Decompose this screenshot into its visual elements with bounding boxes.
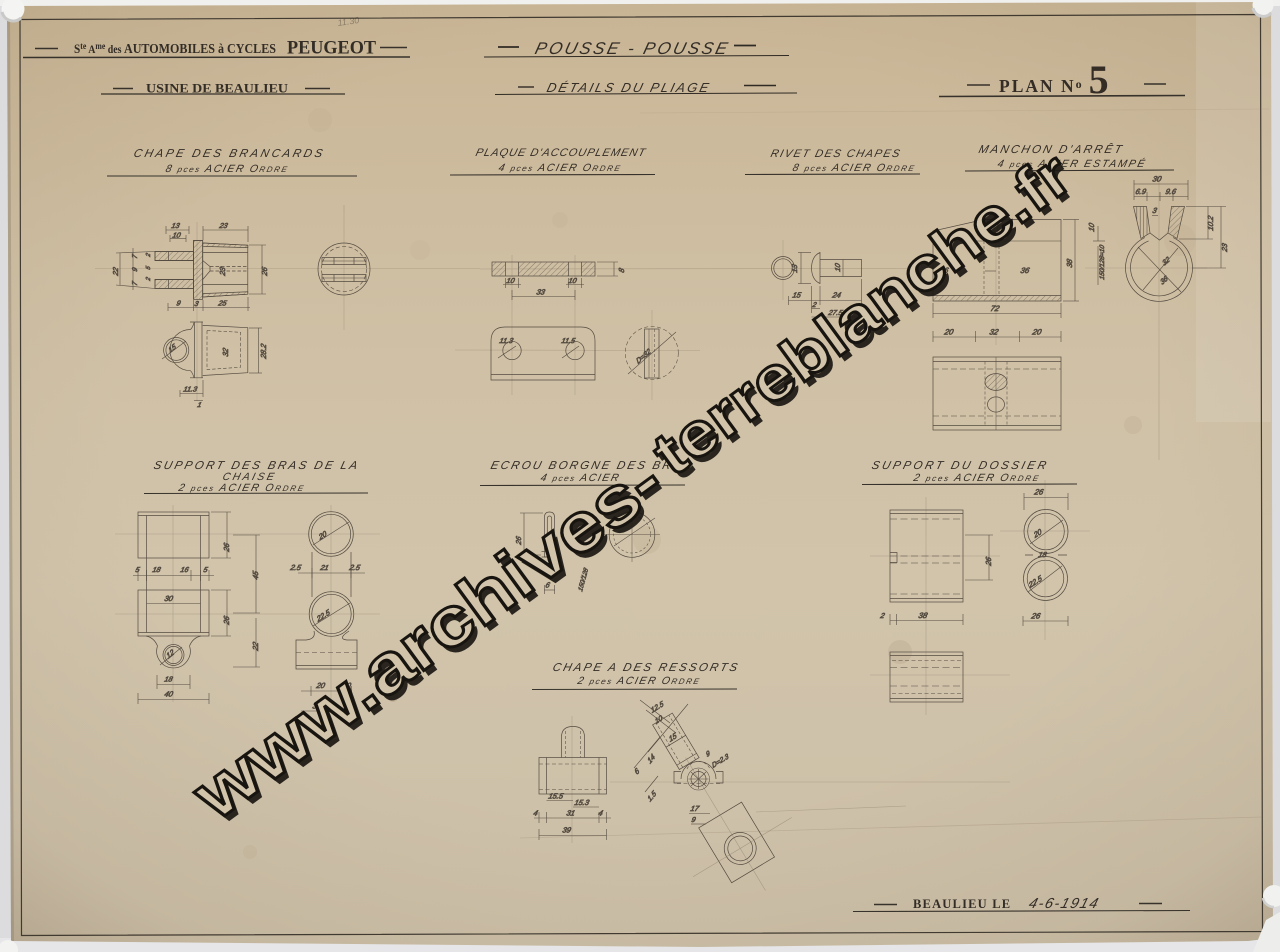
svg-text:2 pces ACIER ORDRE: 2 pces ACIER ORDRE [575,675,702,687]
svg-text:CHAPE DES BRANCARDS: CHAPE DES BRANCARDS [132,147,326,160]
svg-text:15.5: 15.5 [548,792,566,801]
svg-text:15.3: 15.3 [574,798,592,807]
svg-text:10.2: 10.2 [1206,214,1215,232]
svg-text:SUPPORT DES BRAS DE LA: SUPPORT DES BRAS DE LA [152,459,361,472]
svg-text:8 pces ACIER ORDRE: 8 pces ACIER ORDRE [791,162,917,174]
svg-text:28.2: 28.2 [259,342,268,361]
svg-text:150/128=10: 150/128=10 [1099,244,1106,281]
svg-text:PEUGEOT: PEUGEOT [287,38,376,59]
svg-text:CHAPE A DES RESSORTS: CHAPE A DES RESSORTS [551,661,741,674]
svg-text:USINE DE BEAULIEU: USINE DE BEAULIEU [146,81,289,96]
svg-text:DÉTAILS DU PLIAGE: DÉTAILS DU PLIAGE [545,80,712,95]
svg-text:4 pces ACIER ORDRE: 4 pces ACIER ORDRE [497,162,623,174]
svg-text:POUSSE - POUSSE: POUSSE - POUSSE [533,38,732,58]
svg-text:PLAQUE D'ACCOUPLEMENT: PLAQUE D'ACCOUPLEMENT [474,147,647,159]
svg-text:BEAULIEU LE: BEAULIEU LE [913,897,1011,911]
svg-text:Ste Ame des AUTOMOBILES à CYCL: Ste Ame des AUTOMOBILES à CYCLES [74,41,276,57]
svg-text:RIVET DES CHAPES: RIVET DES CHAPES [769,148,902,160]
svg-text:8 pces ACIER ORDRE: 8 pces ACIER ORDRE [164,163,290,175]
svg-text:SUPPORT DU DOSSIER: SUPPORT DU DOSSIER [870,459,1050,472]
svg-text:11.3: 11.3 [499,336,515,345]
svg-text:11.3: 11.3 [183,385,199,394]
svg-text:2 pces ACIER ORDRE: 2 pces ACIER ORDRE [176,482,306,494]
svg-text:2 pces ACIER ORDRE: 2 pces ACIER ORDRE [911,472,1041,484]
svg-text:4-6-1914: 4-6-1914 [1027,896,1101,912]
